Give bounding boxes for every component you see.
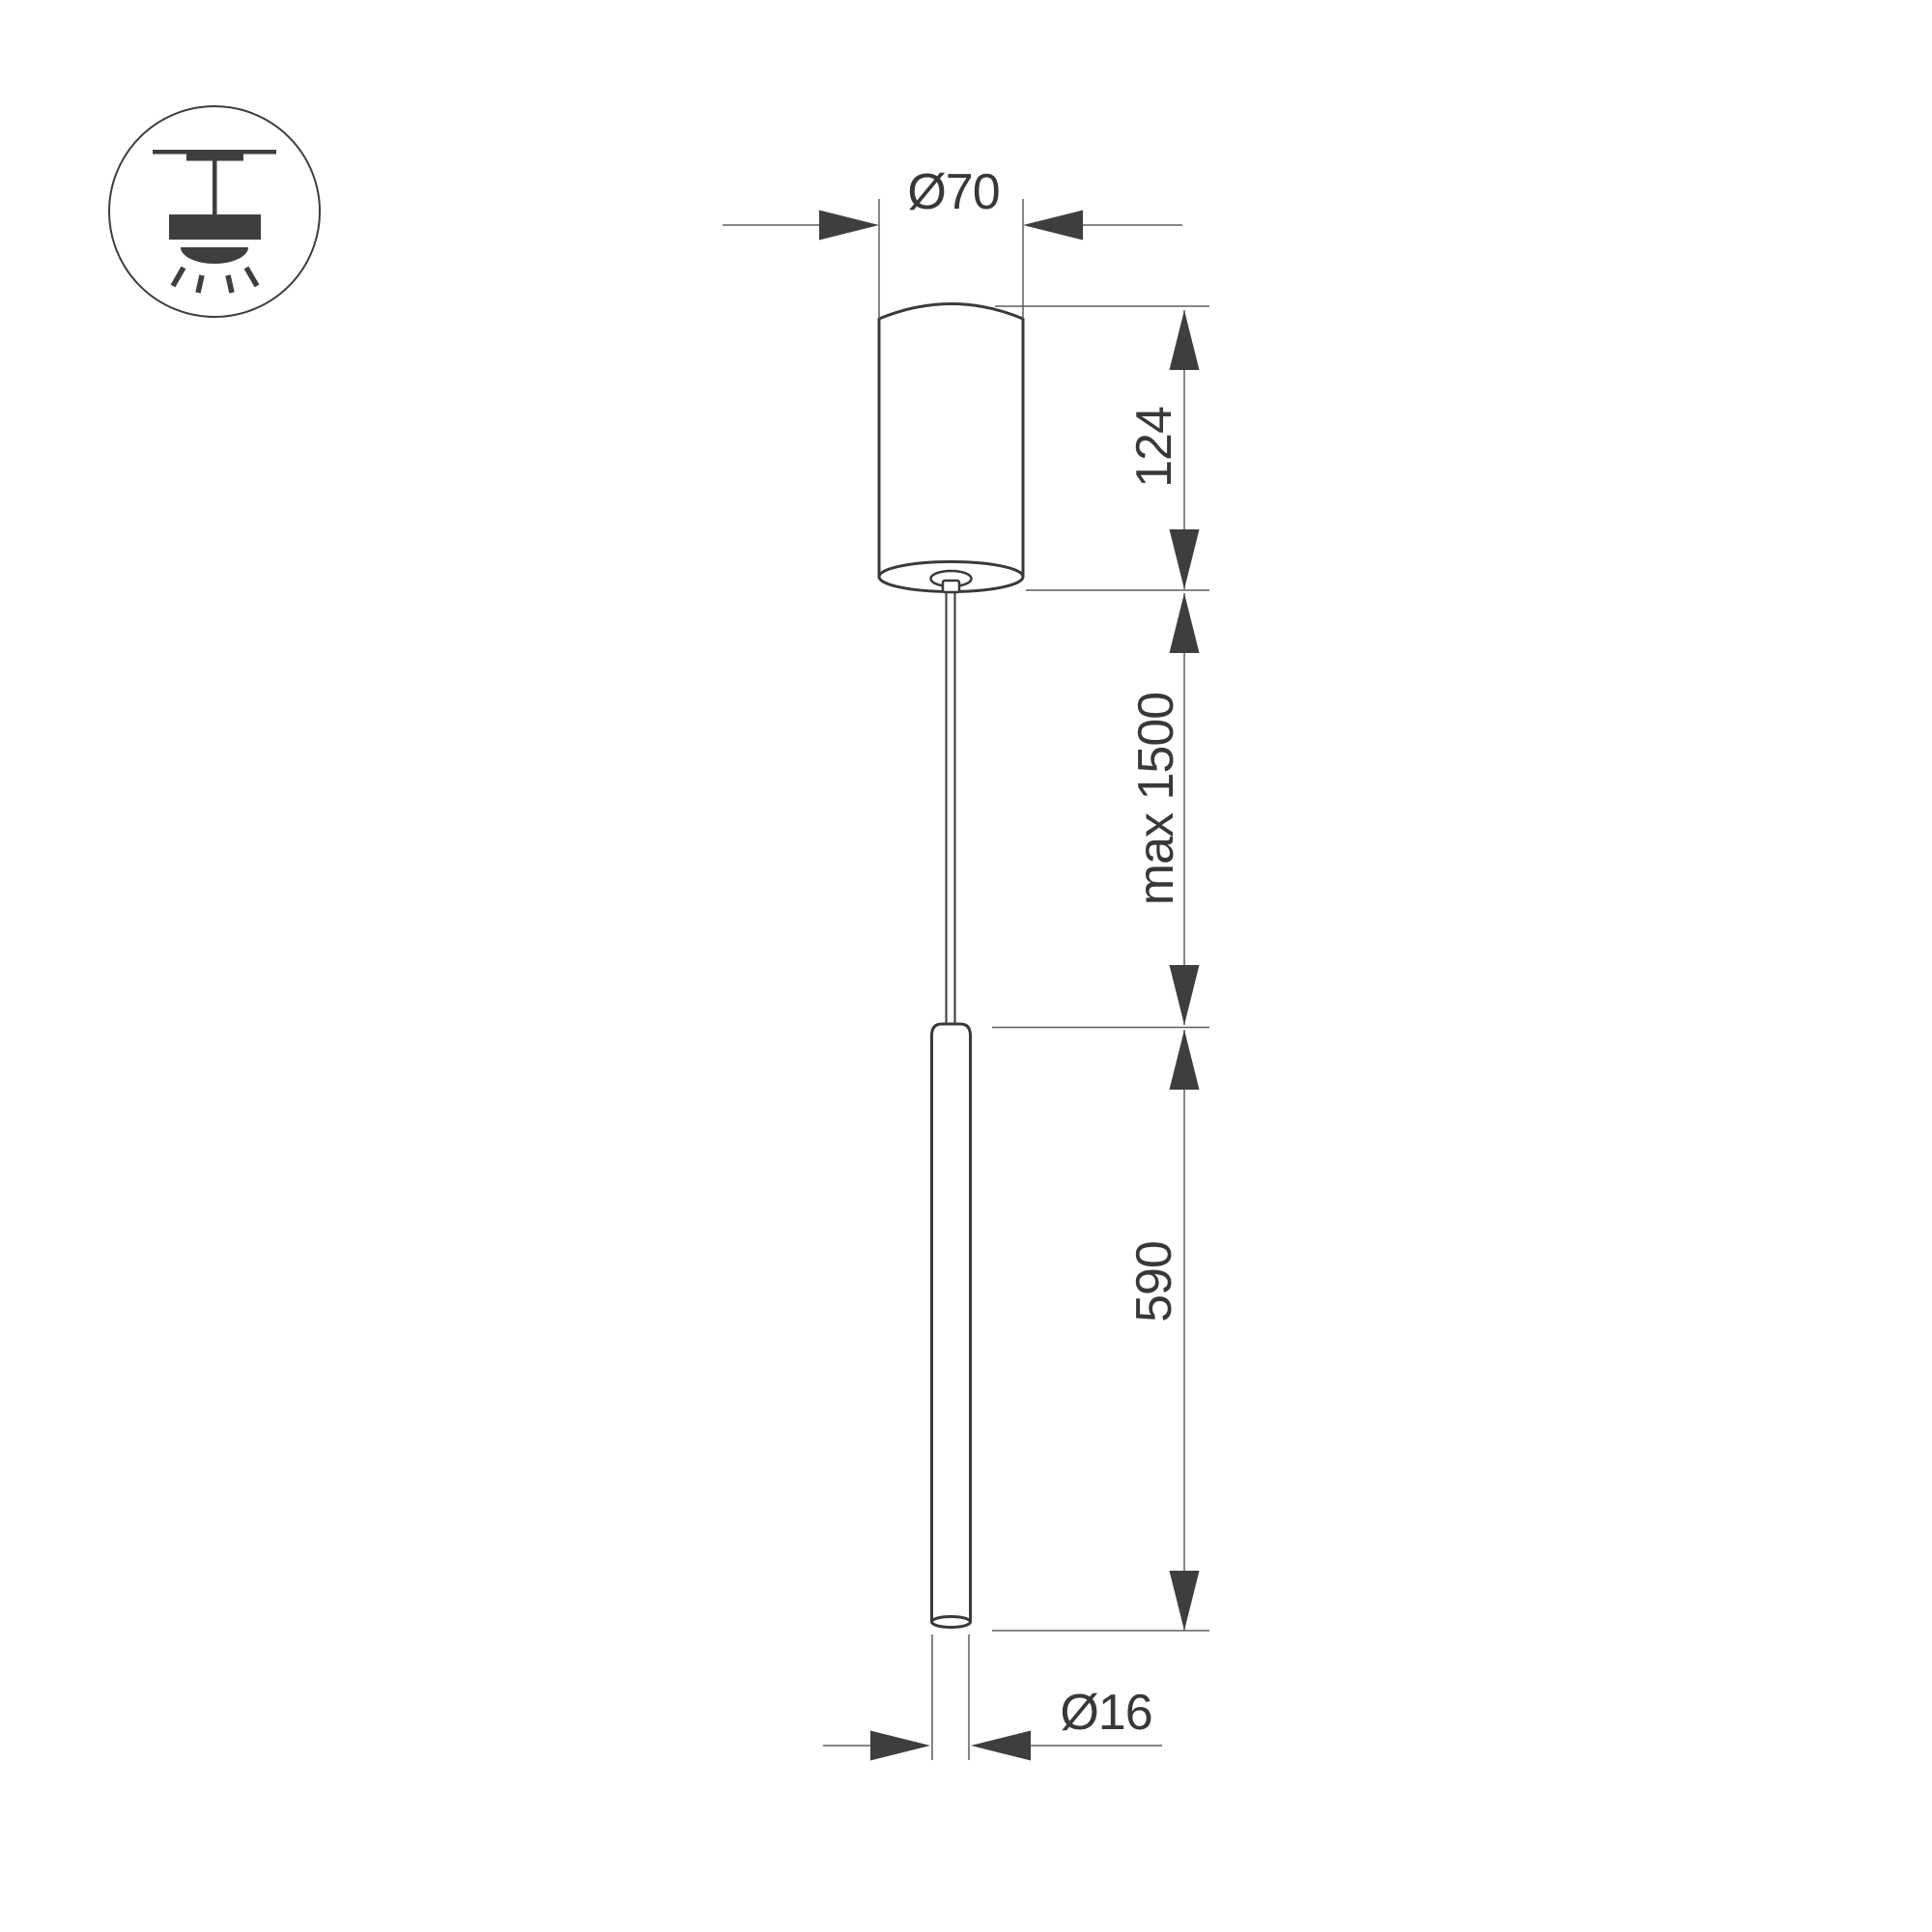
arrow-up-icon — [1170, 593, 1200, 653]
icon-lamp-shade — [181, 247, 248, 264]
tube-lamp-outline — [932, 1024, 971, 1622]
icon-stem — [213, 160, 217, 215]
cable-strain-relief — [943, 581, 959, 592]
arrow-right-icon — [819, 211, 879, 241]
dimension-label-tube-diameter: Ø16 — [1060, 1685, 1151, 1741]
arrow-up-icon — [1170, 1030, 1200, 1090]
drawing-page: Ø70 124 max 1500 590 — [0, 0, 1932, 1932]
icon-lamp-body — [169, 214, 261, 240]
arrow-left-icon — [971, 1731, 1031, 1761]
arrow-right-icon — [870, 1731, 930, 1761]
dimension-canopy-diameter: Ø70 — [723, 164, 1182, 319]
dimension-tube-length: 590 — [992, 1030, 1209, 1631]
arrow-down-icon — [1170, 529, 1200, 589]
dimension-canopy-height: 124 — [995, 306, 1209, 590]
technical-drawing-canvas: Ø70 124 max 1500 590 — [0, 0, 1932, 1932]
arrow-up-icon — [1170, 310, 1200, 370]
icon-ceiling-line — [153, 150, 276, 155]
dimension-label-tube-length: 590 — [1126, 1241, 1182, 1322]
dimension-label-canopy-diameter: Ø70 — [907, 164, 999, 220]
dimension-label-canopy-height: 124 — [1126, 407, 1182, 488]
arrow-down-icon — [1170, 965, 1200, 1025]
canopy-outline — [879, 304, 1023, 578]
dimension-tube-diameter: Ø16 — [823, 1634, 1162, 1761]
arrow-left-icon — [1023, 211, 1083, 241]
ceiling-pendant-mount-icon — [109, 106, 320, 317]
suspension-wire — [947, 592, 955, 1024]
icon-mount-plate — [186, 155, 243, 161]
tube-bottom-ellipse — [932, 1617, 971, 1628]
dimension-suspension-length: max 1500 — [992, 593, 1209, 1028]
pendant-lamp-drawing — [879, 304, 1023, 1628]
dimension-label-suspension-length: max 1500 — [1128, 693, 1184, 905]
arrow-down-icon — [1170, 1571, 1200, 1631]
icon-light-rays — [173, 268, 257, 293]
